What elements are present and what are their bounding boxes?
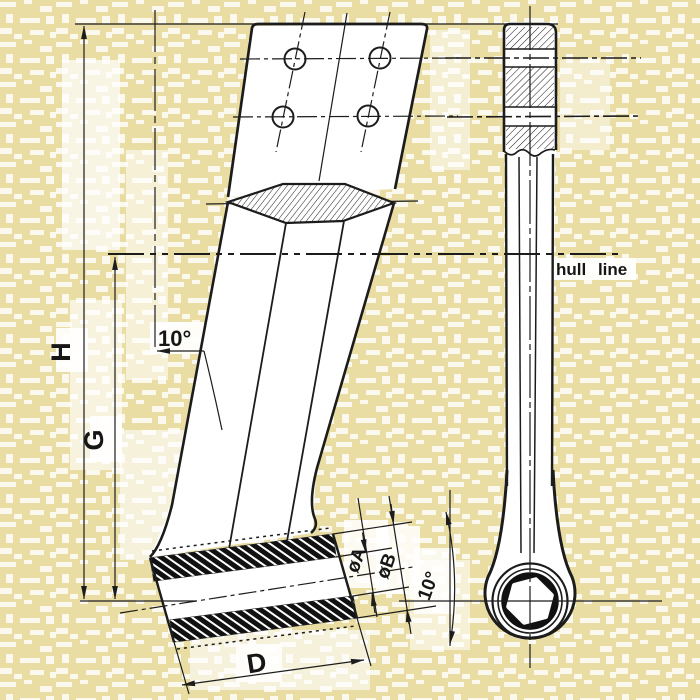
label-rake-angle: 10° (158, 326, 191, 351)
blade-side-right-edge (552, 154, 553, 486)
label-G: G (79, 429, 109, 450)
label-H: H (46, 342, 76, 362)
scanned-technical-drawing: H G 10° hull line D øA øB 10° (0, 0, 700, 700)
strut-drawing-canvas: H G 10° hull line D øA øB 10° (0, 0, 700, 700)
blade-side-left-edge (506, 154, 507, 486)
label-hull-line: hull line (556, 260, 627, 279)
